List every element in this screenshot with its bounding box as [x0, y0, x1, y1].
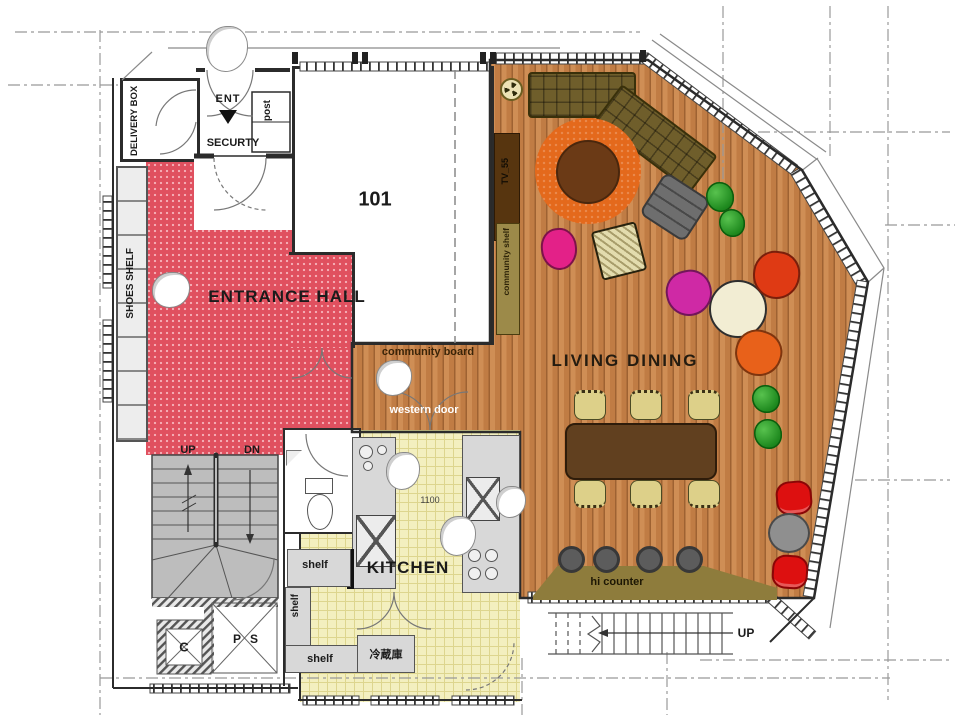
- shelf-left-label: shelf: [291, 594, 302, 617]
- plant-icon: [706, 182, 734, 212]
- stairs-up-label: UP: [180, 444, 195, 456]
- shelf-top-label: shelf: [302, 559, 328, 571]
- dining-chair: [688, 390, 720, 420]
- shelf-bottom-label: shelf: [307, 653, 333, 665]
- staircase-lines: [152, 455, 278, 598]
- counter-stool: [558, 546, 585, 573]
- pipe-space-label: P S: [233, 632, 261, 646]
- plant-icon: [752, 385, 780, 413]
- round-low-table: [556, 140, 620, 204]
- plan-linework: [0, 0, 960, 720]
- dining-chair: [630, 480, 662, 508]
- dining-chair: [630, 390, 662, 420]
- windows: [103, 53, 868, 705]
- red-lounge-chair: [775, 479, 814, 516]
- external-up-label: UP: [738, 626, 755, 640]
- toilet-tank: [305, 478, 333, 494]
- entrance-hall-label: ENTRANCE HALL: [208, 287, 366, 307]
- stairs-dn-label: DN: [244, 444, 260, 456]
- plant-icon: [719, 209, 745, 237]
- ent-label: ENT: [216, 93, 241, 105]
- grid-lines: [8, 6, 955, 715]
- community-shelf-label: community shelf: [502, 228, 511, 296]
- dining-chair: [574, 390, 606, 420]
- dimension-1100-label: 1100: [420, 495, 439, 505]
- post-label: post: [263, 100, 274, 121]
- duct-label: C: [179, 640, 188, 655]
- side-table-gray: [768, 513, 810, 553]
- plant-icon: [754, 419, 782, 449]
- tv-label: TV_55: [501, 158, 510, 185]
- refrigerator-label: 冷蔵庫: [370, 646, 403, 662]
- security-label: SECURTY: [207, 137, 260, 149]
- counter-stool: [636, 546, 663, 573]
- counter-stool: [593, 546, 620, 573]
- hi-counter-label: hi counter: [590, 576, 643, 588]
- kitchen-sink: [466, 477, 500, 521]
- dining-chair: [688, 480, 720, 508]
- counter-stool: [676, 546, 703, 573]
- ent-arrow-icon: [219, 110, 237, 124]
- floor-plan: 101 ENTRANCE HALL LIVING DINING KITCHEN …: [0, 0, 960, 720]
- door-arcs: [156, 70, 514, 690]
- ceiling-fan-icon: [500, 78, 523, 101]
- community-board-label: community board: [382, 346, 474, 358]
- external-stairs: [548, 613, 733, 654]
- red-lounge-chair: [771, 554, 809, 590]
- delivery-box-label: DELIVERY BOX: [130, 84, 140, 156]
- kitchen-label: KITCHEN: [367, 558, 450, 578]
- living-dining-label: LIVING DINING: [552, 351, 699, 371]
- dining-table: [565, 423, 717, 480]
- western-door-label: western door: [389, 404, 458, 416]
- dining-chair: [574, 480, 606, 508]
- shoes-shelf-label: SHOES SHELF: [126, 248, 137, 319]
- room-101-label: 101: [358, 189, 391, 212]
